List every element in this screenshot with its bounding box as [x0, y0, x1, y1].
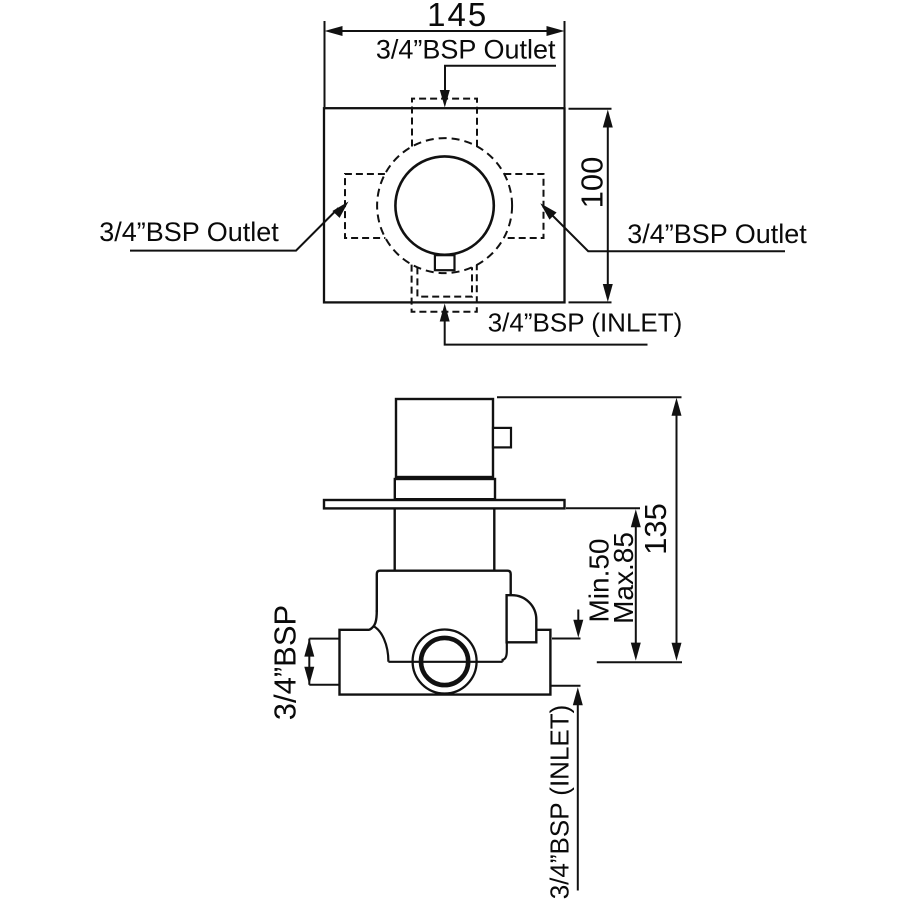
svg-text:135: 135: [638, 503, 673, 555]
svg-text:3/4”BSP Outlet: 3/4”BSP Outlet: [376, 35, 556, 65]
svg-text:3/4”BSP (INLET): 3/4”BSP (INLET): [545, 705, 575, 900]
svg-text:3/4”BSP (INLET): 3/4”BSP (INLET): [488, 308, 683, 338]
svg-text:3/4”BSP: 3/4”BSP: [267, 605, 302, 720]
svg-text:3/4”BSP Outlet: 3/4”BSP Outlet: [99, 217, 279, 247]
svg-text:100: 100: [575, 157, 610, 209]
svg-text:3/4”BSP Outlet: 3/4”BSP Outlet: [627, 219, 807, 249]
svg-text:145: 145: [427, 0, 488, 33]
svg-text:Max.85: Max.85: [608, 532, 639, 624]
